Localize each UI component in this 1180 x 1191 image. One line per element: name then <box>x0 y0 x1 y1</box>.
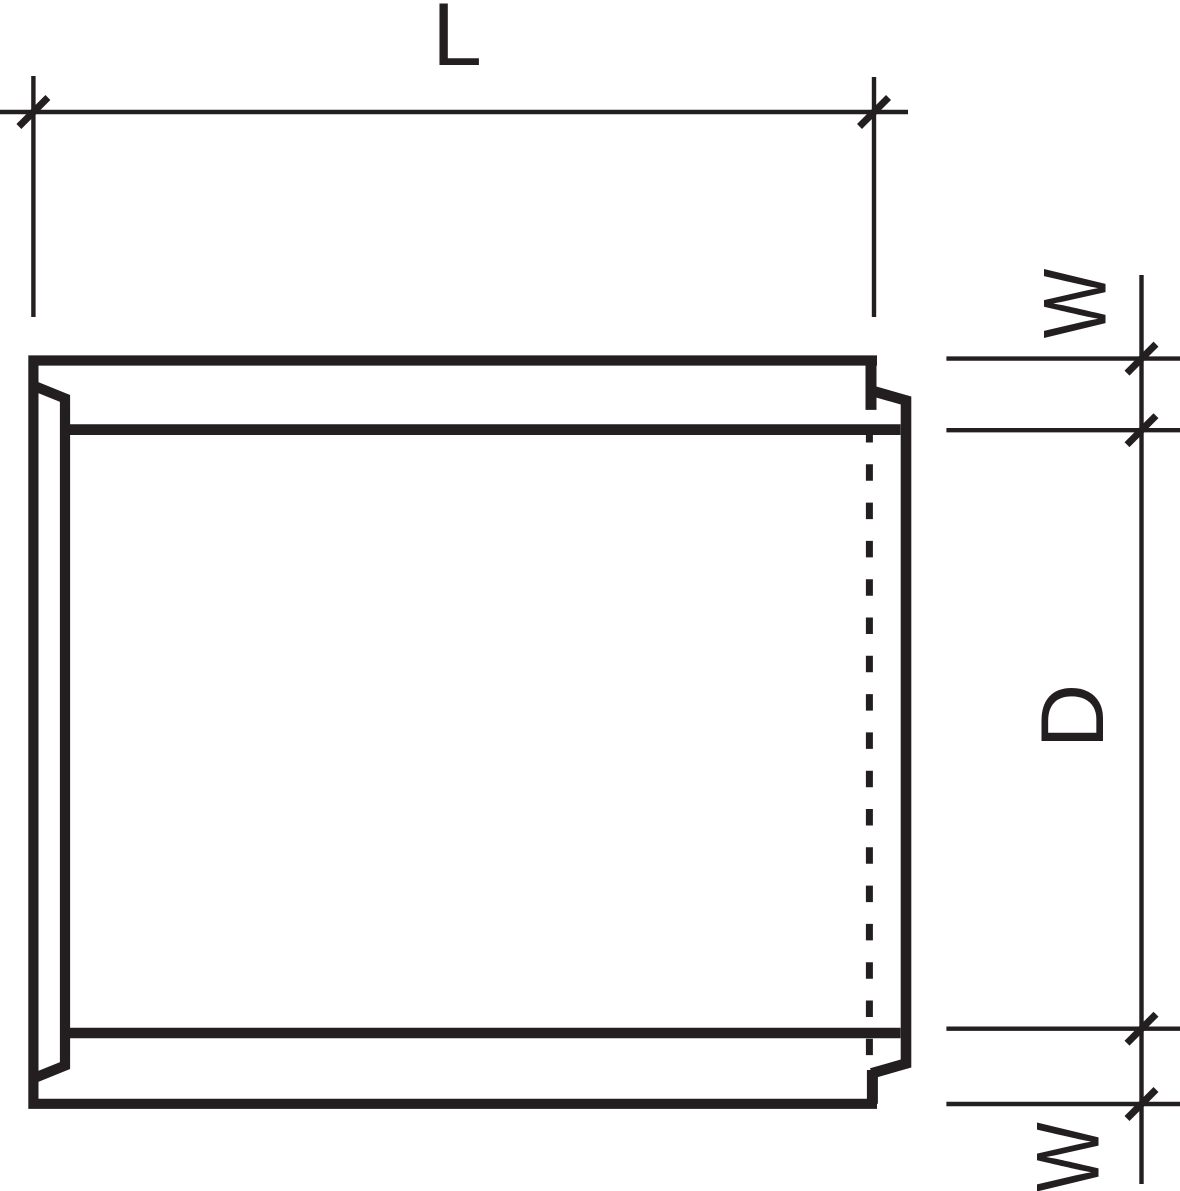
svg-text:L: L <box>432 0 482 84</box>
svg-text:D: D <box>1022 684 1122 749</box>
svg-text:W: W <box>1019 1122 1118 1191</box>
svg-text:W: W <box>1026 268 1125 338</box>
